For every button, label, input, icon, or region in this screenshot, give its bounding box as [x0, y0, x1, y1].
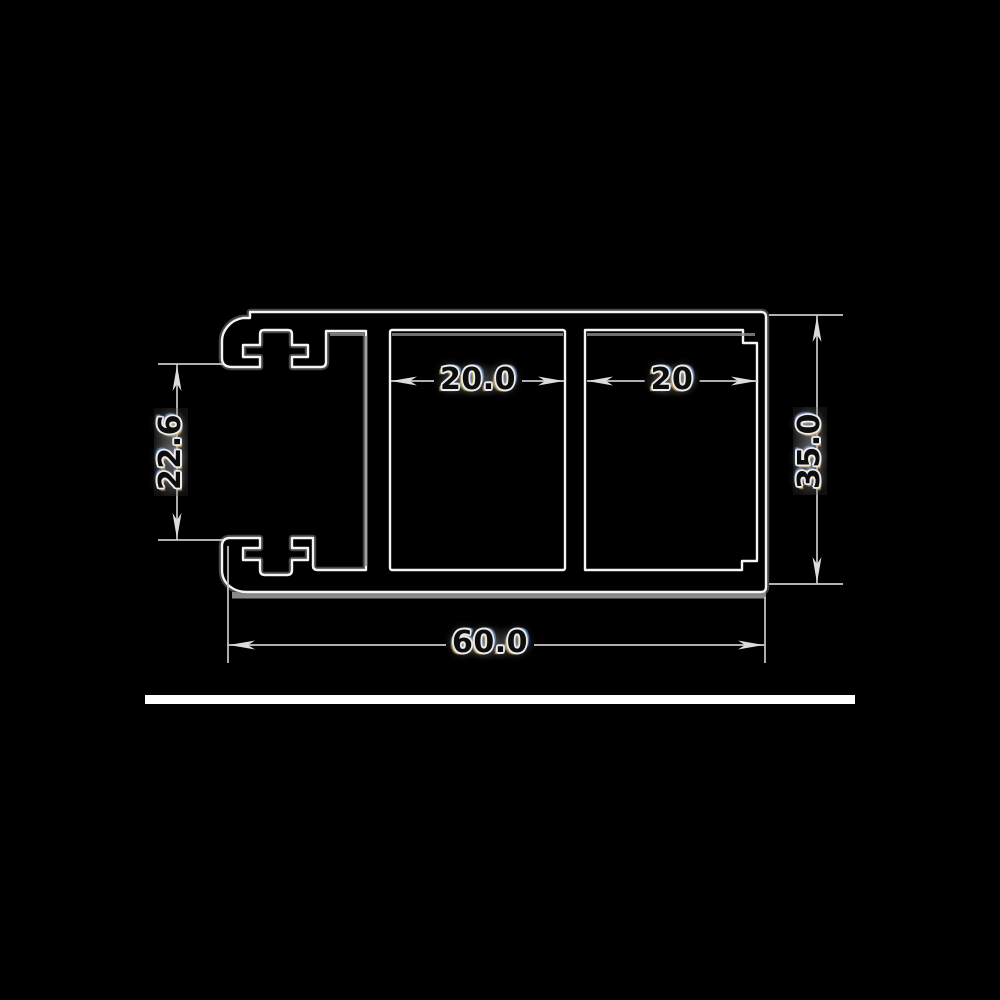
dim-label-left-opening-height: 22.6 — [154, 408, 188, 496]
drawing-canvas: 20.0 20 22.6 35.0 60.0 — [0, 0, 1000, 1000]
profile-cross-section-drawing — [0, 0, 1000, 1000]
dim-label-right-chamber-width: 20 — [645, 363, 700, 397]
dim-label-overall-width: 60.0 — [446, 626, 534, 660]
baseline-strip — [145, 695, 855, 704]
dim-label-middle-chamber-width: 20.0 — [434, 363, 522, 397]
dim-label-overall-height: 35.0 — [793, 407, 827, 495]
